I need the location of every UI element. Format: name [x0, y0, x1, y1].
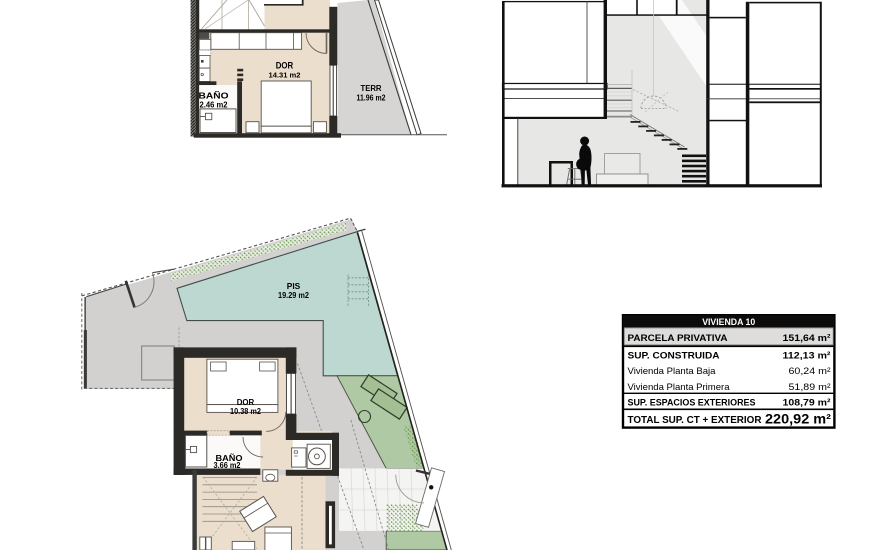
svg-text:DOR: DOR: [237, 397, 255, 407]
svg-text:2.46 m2: 2.46 m2: [200, 100, 229, 109]
svg-text:Vivienda Planta Primera: Vivienda Planta Primera: [628, 381, 731, 392]
svg-text:14.31 m2: 14.31 m2: [269, 71, 301, 80]
svg-text:220,92 m²: 220,92 m²: [765, 411, 832, 426]
svg-text:151,64 m²: 151,64 m²: [783, 333, 831, 344]
svg-text:BAÑO: BAÑO: [199, 90, 229, 100]
svg-text:10.38 m2: 10.38 m2: [230, 407, 262, 416]
svg-text:PIS: PIS: [287, 281, 301, 291]
svg-text:VIVIENDA 10: VIVIENDA 10: [702, 317, 755, 327]
svg-text:DOR: DOR: [276, 61, 294, 71]
svg-text:112,13 m²: 112,13 m²: [783, 350, 831, 361]
svg-text:TERR: TERR: [361, 83, 383, 93]
svg-text:108,79 m²: 108,79 m²: [783, 397, 831, 408]
svg-text:TOTAL SUP. CT + EXTERIOR: TOTAL SUP. CT + EXTERIOR: [628, 415, 762, 426]
svg-text:60,24 m²: 60,24 m²: [789, 365, 831, 376]
svg-text:SUP. CONSTRUIDA: SUP. CONSTRUIDA: [628, 350, 720, 361]
svg-text:51,89 m²: 51,89 m²: [789, 381, 831, 392]
svg-text:SUP. ESPACIOS EXTERIORES: SUP. ESPACIOS EXTERIORES: [628, 397, 757, 408]
svg-text:PARCELA PRIVATIVA: PARCELA PRIVATIVA: [628, 333, 728, 344]
svg-text:Vivienda Planta Baja: Vivienda Planta Baja: [628, 365, 717, 376]
svg-text:11.96 m2: 11.96 m2: [357, 93, 386, 102]
svg-text:19.29 m2: 19.29 m2: [278, 291, 310, 300]
